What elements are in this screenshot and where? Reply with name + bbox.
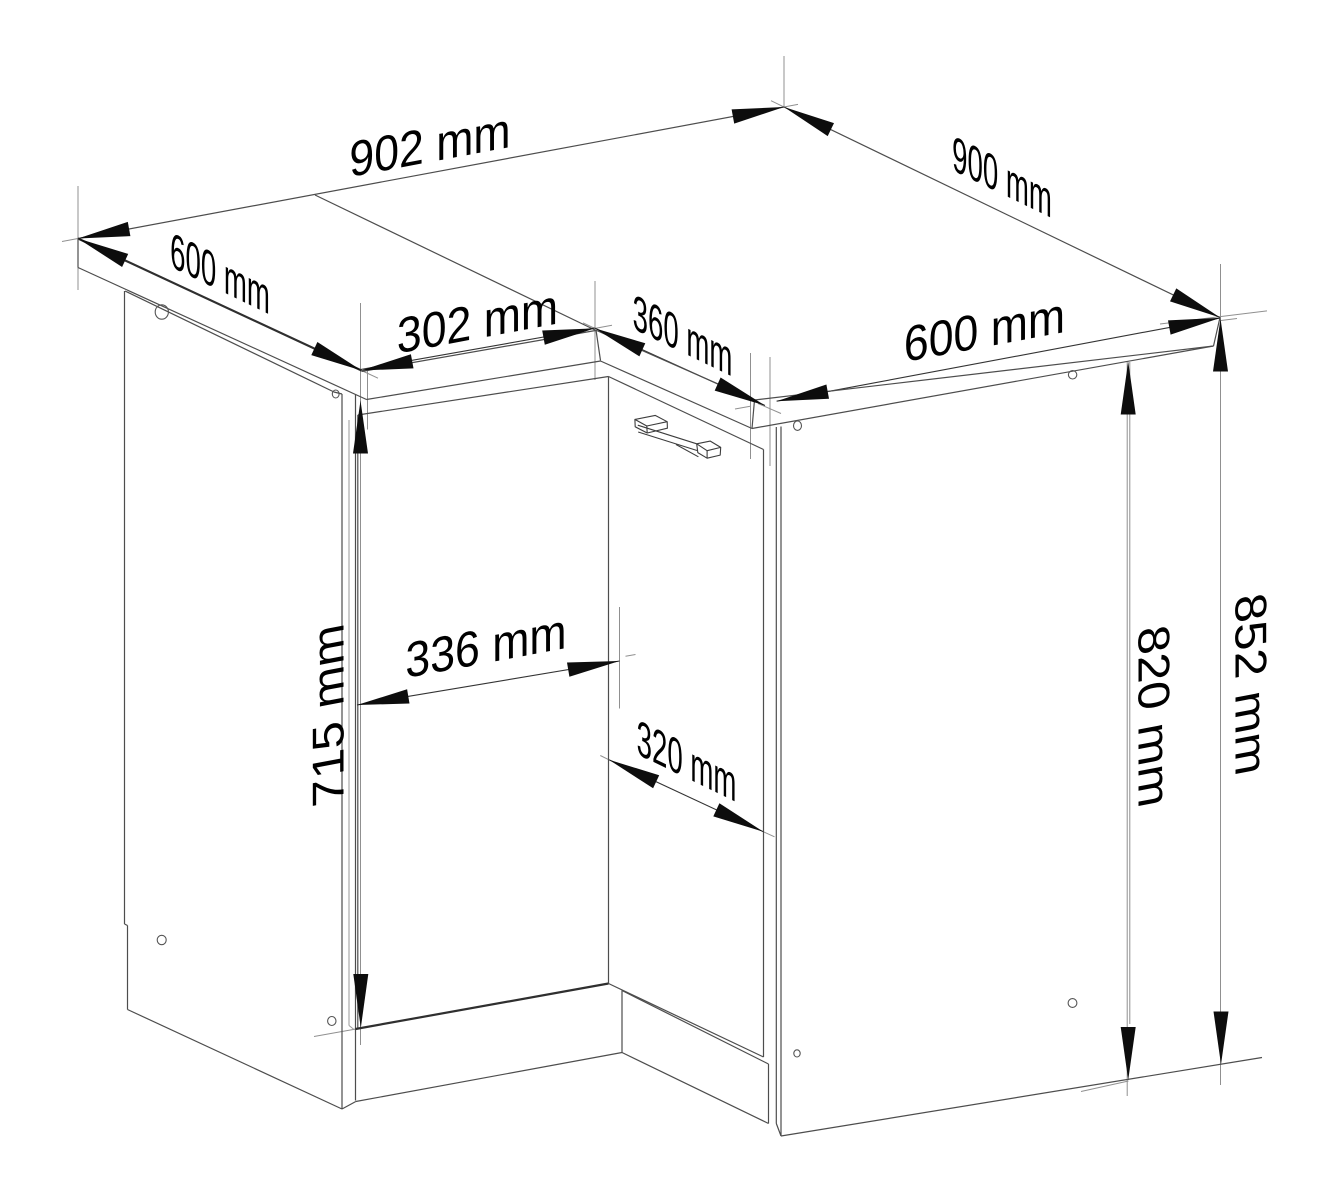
svg-text:852 mm: 852 mm: [1225, 589, 1275, 779]
svg-text:715 mm: 715 mm: [304, 620, 354, 810]
svg-text:820 mm: 820 mm: [1128, 621, 1178, 811]
